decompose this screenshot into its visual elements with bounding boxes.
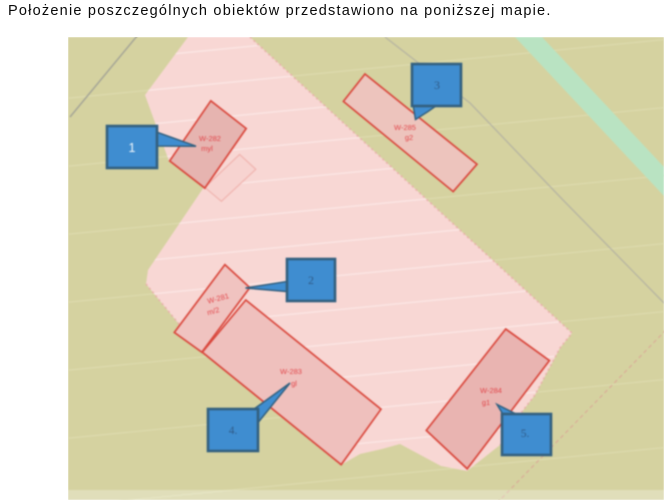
- svg-text:W-284: W-284: [480, 386, 502, 395]
- svg-text:3: 3: [434, 78, 440, 92]
- svg-text:2: 2: [308, 273, 314, 287]
- svg-text:g1: g1: [482, 398, 490, 407]
- svg-text:g2: g2: [405, 133, 413, 142]
- svg-text:myl: myl: [201, 144, 213, 153]
- svg-text:5.: 5.: [521, 428, 530, 440]
- svg-text:gl: gl: [291, 379, 297, 388]
- svg-text:W-282: W-282: [199, 134, 221, 143]
- svg-text:W-285: W-285: [394, 123, 416, 132]
- svg-text:4.: 4.: [229, 425, 238, 437]
- svg-text:1: 1: [129, 141, 136, 155]
- svg-text:W-283: W-283: [280, 367, 302, 376]
